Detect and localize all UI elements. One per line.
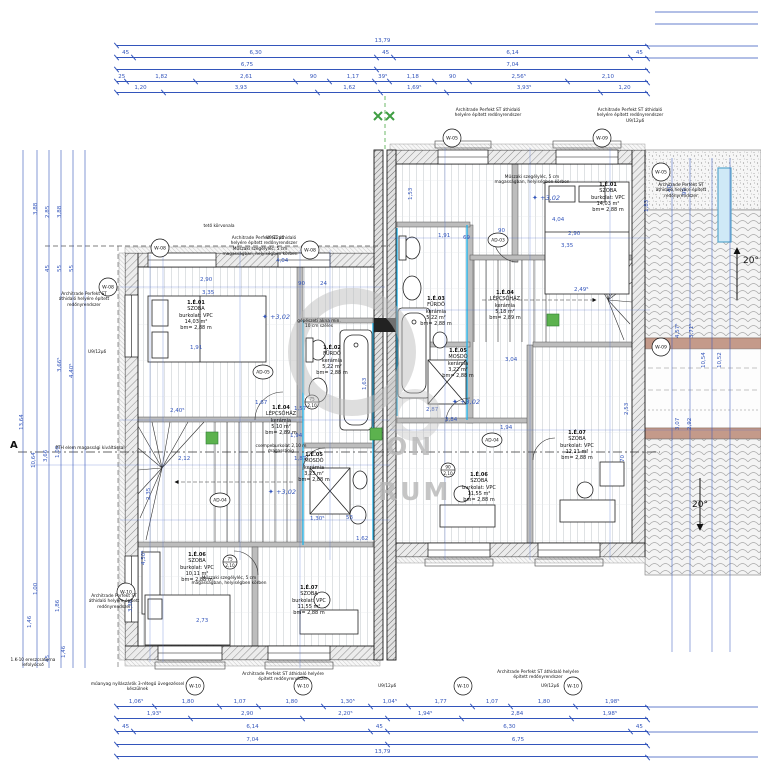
annotation-skirting: Műszaki szegélyléc, 5 cm magasságban, he… [190,576,268,587]
roof-dim: 10,54 [702,352,708,368]
svg-text:2,12: 2,12 [178,456,190,462]
dim-segment: 1,20 [601,84,648,93]
svg-text:2,40⁵: 2,40⁵ [170,407,184,414]
dim-chain-top-row2: 456,30456,1445 [117,49,648,58]
left-dim: 3,66⁵ [58,358,64,372]
room-label-lepcsohaz-l3: 1.É.04LÉPCSŐHÁZ kerámia5,10 m² bm= 2,89 … [250,405,312,436]
door-size: 2,10 [225,563,235,568]
window-tag: W-08 [304,248,316,254]
dim-segment: 6,75 [388,736,648,745]
dim-chain-bottom-total: 13,79 [117,748,648,757]
left-dim: 55 [70,265,76,272]
roof-dim: 10,52 [718,352,724,368]
svg-text:69: 69 [463,235,470,241]
annotation-shutter: Architrade Perfekt ST áthidaló helyére é… [448,108,528,119]
window-tag: W-10 [567,684,579,690]
room-label-szoba-r6: 1.É.07SZOBA burkolat: VPC12,11 m² bm= 2,… [548,430,606,461]
annotation-pth: PTH elem magassági kiváltással [54,446,126,451]
dim-segment: 1,82 [127,73,197,82]
roof-slope-label: 20° [743,256,759,266]
dim-segment: 2,90 [191,710,303,719]
svg-text:2,53: 2,53 [624,402,630,415]
window-tag: W-05 [446,136,458,142]
dim-segment: 6,14 [394,49,630,58]
window-tag: W-08 [102,285,114,291]
dim-segment: 45 [631,723,648,732]
uv-code: U9/12μ6 [626,119,644,124]
dim-chain-bottom-row1: 1,06⁵1,801,071,801,30⁵1,04⁵1,771,071,801… [117,698,648,707]
annotation-shutter: Architrade Perfekt ST áthidaló helyére é… [650,183,712,199]
annotation-shutter: Architrade Perfekt ST áthidaló helyére é… [52,292,116,308]
left-dim: 2,85 [46,206,52,218]
annotation-skirting: Műszaki szegélyléc, 5 cm magasságban, he… [222,247,298,258]
svg-text:2,73: 2,73 [196,618,209,624]
dim-segment: 1,06⁵ [117,698,155,707]
level-marker: +3,02 [532,194,560,202]
svg-text:1,30⁵: 1,30⁵ [310,515,324,522]
svg-text:90: 90 [498,228,505,234]
annotation-glazing: műanyag nyílászárók 3-rétegű üvegezéssel… [80,682,195,693]
dim-segment: 90 [435,73,469,82]
dim-segment: 1,07 [220,698,259,707]
annotation-tiling: csempeburkolat 2,10 m magasságig [250,444,312,455]
svg-text:2,35: 2,35 [146,487,152,500]
svg-text:3,84: 3,84 [445,417,458,423]
svg-text:3,35: 3,35 [202,290,215,296]
left-dim: 1,46 [62,646,68,658]
dim-segment: 1,04⁵ [371,698,409,707]
svg-text:70: 70 [620,455,626,462]
svg-text:1,91: 1,91 [438,233,450,239]
party-wall [374,150,396,660]
left-dim: 45 [46,265,52,272]
window-tag: W-10 [297,684,309,690]
dim-segment: 3,93 [164,84,318,93]
roof-slope-label: 20° [692,500,708,510]
svg-text:4,04: 4,04 [552,217,565,223]
uv-code: U9/12μ6 [266,236,284,241]
svg-text:4,04: 4,04 [276,258,289,264]
svg-text:90: 90 [298,281,305,287]
dim-chain-bottom-row4: 7,046,75 [117,736,648,745]
room-label-furdo-r2: 1.É.03FÜRDŐ kerámia5,22 m² bm= 2,88 m [408,296,464,327]
left-dim: 13,64 [20,414,26,430]
dim-segment: 13,79 [117,37,648,46]
level-marker: +3,02 [262,313,290,321]
left-dim: 3,88 [34,203,40,215]
dim-chain-bottom-row2: 1,93⁵2,902,20⁵1,94⁵2,841,98⁵ [117,710,648,719]
room-label-mosdo-r4: 1.É.05MOSDÓ kerámia3,22 m² bm= 2,88 m [432,348,484,379]
svg-text:2,87: 2,87 [426,407,439,413]
annotation-shutter: Architrade Perfekt ST áthidaló helyére é… [230,236,298,247]
window-tag: W-09 [596,136,608,142]
window-tag: W-05 [655,170,667,176]
svg-text:2,90: 2,90 [200,277,213,283]
dim-segment: 1,80 [511,698,576,707]
dim-segment: 1,80 [155,698,220,707]
dim-segment: 6,75 [117,61,377,70]
dim-chain-top-row5: 1,203,931,621,69⁵3,93⁵1,20 [117,84,648,93]
left-dim: 1,00 [34,583,40,595]
uv-code: U9/12μ6 [378,684,396,689]
svg-text:3,04: 3,04 [505,357,518,363]
room-label-lepcsohaz-r3: 1.É.04LÉPCSŐHÁZ kerámia5,18 m² bm= 2,89 … [474,290,536,321]
dim-segment: 1,94⁵ [388,710,463,719]
dim-chain-top-row4: 251,822,61901,1739⁵1,18902,56⁵2,10 [117,73,648,82]
dim-segment: 1,77 [409,698,473,707]
dim-segment: 3,93⁵ [447,84,601,93]
svg-text:2,49⁵: 2,49⁵ [574,286,588,293]
dim-segment: 7,04 [117,736,388,745]
dim-segment: 1,69⁵ [381,84,447,93]
dim-segment: 1,07 [473,698,512,707]
level-marker: +3,02 [452,398,480,406]
dim-segment: 90 [296,73,330,82]
uv-code: U9/12μ6 [541,684,559,689]
room-label-szoba-r5: 1.É.06SZOBA burkolat: VPC11,55 m² bm= 2,… [450,472,508,503]
dim-segment: 45 [631,49,648,58]
dim-chain-top-total: 13,79 [117,37,648,46]
dim-segment: 1,30⁵ [324,698,371,707]
window-tag: W-10 [457,684,469,690]
dim-segment: 6,30 [134,49,377,58]
left-dim: 4,40⁵ [70,364,76,378]
dim-segment: 1,20 [117,84,164,93]
room-label-furdo-l2: 1.É.02FÜRDŐ kerámia5,22 m² bm= 2,88 m [303,345,361,376]
door-tag: AD-04 [485,438,499,444]
dim-segment: 7,04 [377,61,648,70]
door-size: 90 [445,465,451,470]
annotation-shaft: gépészeti akna min. 10 cm széles [294,319,344,330]
roof-dim: 3,71⁵ [690,324,696,338]
svg-text:2,90: 2,90 [568,231,581,237]
annotation-shutter: Architrade Perfekt ST áthidaló helyére é… [84,594,144,610]
roof-dim: 4,57⁵ [676,324,682,338]
dim-chain-top-row3: 6,757,04 [117,61,648,70]
roof-skylight [718,168,731,242]
door-size: 75 [309,397,315,402]
dim-segment: 1,93⁵ [117,710,191,719]
svg-text:4,50⁵: 4,50⁵ [140,551,147,565]
room-label-szoba-r1: 1.É.01SZOBA burkolat: VPC14,03 m² bm= 2,… [578,182,638,213]
dim-chain-bottom-row3: 456,14456,3045 [117,723,648,732]
dim-segment: 1,18 [390,73,435,82]
survey-symbol [374,112,394,120]
dim-segment: 1,98⁵ [576,698,648,707]
svg-text:1,83: 1,83 [644,199,650,212]
dim-segment: 6,30 [388,723,631,732]
left-dim: 10,64 [32,452,38,468]
annotation-shutter: Architrade Perfekt ST áthidaló helyére é… [590,108,670,119]
door-tag: AD-04 [213,498,227,504]
dim-segment: 6,14 [134,723,370,732]
left-dim: 1,46 [28,616,34,628]
room-label-mosdo-l4: 1.É.05MOSDÓ kerámia3,23 m² bm= 2,88 m [288,452,340,483]
dim-segment: 1,98⁵ [572,710,648,719]
door-tag: AD-03 [491,238,505,244]
dim-segment: 1,17 [330,73,375,82]
svg-text:1,53: 1,53 [408,187,414,200]
svg-text:1,91: 1,91 [190,345,202,351]
svg-text:1,63: 1,63 [362,377,368,390]
annotation-shutter: Architrade Perfekt ST áthidaló helyére é… [492,670,584,681]
roof-dim: 3,07 [676,418,682,430]
dim-segment: 2,84 [462,710,571,719]
level-marker: +3,02 [268,488,296,496]
roof-dim: 2,92 [688,418,694,430]
dim-segment: 1,62 [318,84,381,93]
svg-text:3,35: 3,35 [561,243,574,249]
door-size: 75 [227,557,233,562]
room-label-szoba-l6: 1.É.07SZOBA burkolat: VPC11,55 m² bm= 2,… [280,585,338,616]
dim-segment: 2,20⁵ [303,710,388,719]
annotation-roof-outline: tető körvonala [193,224,245,229]
window-tag: W-08 [154,246,166,252]
roof-plan-area [645,150,761,652]
svg-text:1,62: 1,62 [356,536,368,542]
floorplan-canvas: W-08 W-08 W-08 W-05 W-09 W-05 W-09 W-10 … [0,0,761,775]
dim-segment: 2,56⁵ [470,73,568,82]
annotation-skirting: Műszaki szegélyléc, 5 cm magasságban, he… [494,175,570,186]
dim-segment: 2,61 [196,73,296,82]
left-dim: 3,88 [58,206,64,218]
annotation-gutter: 1.K-10 ereszcsatorna lefolyócső [2,658,64,669]
left-dim: 55 [58,265,64,272]
svg-text:1,94: 1,94 [500,425,513,431]
svg-text:24: 24 [320,281,327,287]
room-label-szoba-l1: 1.É.01SZOBA burkolat: VPC14,03 m² bm= 2,… [165,300,227,331]
uv-code: U9/12μ6 [88,350,106,355]
svg-text:53: 53 [346,515,353,521]
left-dim: 1,86 [56,600,62,612]
left-dim: 3,66 [44,450,50,462]
window-tag: W-09 [655,345,667,351]
annotation-shutter: Architrade Perfekt ST áthidaló helyére é… [237,672,329,683]
dim-segment: 1,80 [259,698,324,707]
dim-segment: 13,79 [117,748,648,757]
dim-segment: 2,10 [568,73,648,82]
door-tag: AD-05 [256,370,270,376]
section-marker-a: A [10,440,18,451]
